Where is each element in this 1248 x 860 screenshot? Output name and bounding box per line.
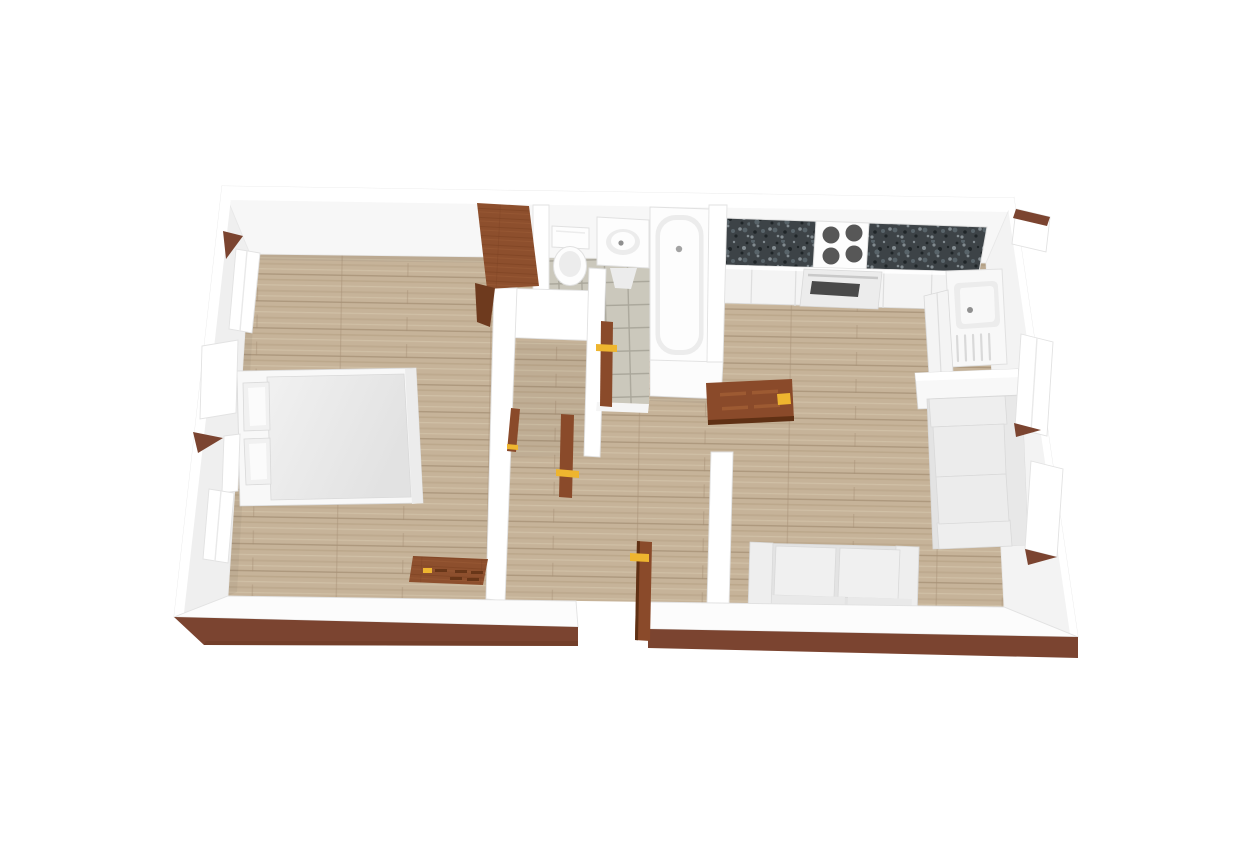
oven[interactable]	[800, 269, 882, 309]
sofa-armrest	[748, 542, 773, 613]
bathtub-drain-icon	[676, 246, 682, 252]
living-room-west-wall	[707, 452, 733, 606]
living-room-door-handle	[777, 393, 791, 405]
bathroom-east-wall	[707, 205, 727, 362]
window-open-sash	[222, 434, 240, 493]
closet-door-leaf	[559, 414, 574, 498]
burner-icon	[823, 248, 840, 265]
bathtub[interactable]	[650, 207, 709, 363]
vanity-basin-inner	[611, 232, 635, 250]
dresser[interactable]	[409, 556, 488, 585]
mattress	[267, 374, 411, 500]
entry-door-handle	[630, 553, 649, 562]
loveseat-armrest	[929, 396, 1007, 427]
double-bed[interactable]	[237, 368, 423, 506]
bedroom-door-handle	[507, 444, 518, 450]
pillow-bevel	[248, 387, 266, 426]
window-right-1[interactable]	[1012, 209, 1050, 252]
cooktop[interactable]	[813, 221, 869, 272]
bathroom-door-leaf	[600, 321, 613, 407]
sofa-back-cushion	[774, 546, 836, 597]
burner-icon	[823, 227, 840, 244]
sofa-back-cushion	[838, 548, 900, 599]
loveseat-armrest	[937, 520, 1012, 549]
pillow-bevel	[249, 443, 267, 480]
floor-plan-canvas	[0, 0, 1248, 860]
bathroom-door-handle	[596, 344, 617, 352]
dresser-gold-handle	[423, 568, 432, 573]
window-right-2[interactable]	[1015, 334, 1053, 436]
loveseat-cushion	[936, 474, 1009, 524]
vanity-faucet-icon	[618, 240, 623, 245]
loveseat[interactable]	[927, 395, 1028, 549]
floor-plan-3d-render	[0, 0, 1248, 860]
kitchen-sink[interactable]	[946, 269, 1007, 367]
window-open-sash	[200, 340, 238, 419]
toilet-tank	[552, 226, 589, 249]
closet-floor-shadow	[511, 341, 589, 457]
bathtub-basin	[660, 220, 699, 350]
sink-drain-icon	[967, 307, 973, 313]
burner-icon	[846, 246, 863, 263]
wardrobe-top	[477, 203, 539, 289]
base-trim-shadow	[204, 641, 578, 646]
window-left-3[interactable]	[203, 489, 234, 563]
sink-bowl-inner	[960, 286, 995, 324]
loveseat-cushion	[933, 424, 1006, 477]
toilet-bowl-inner	[559, 251, 581, 277]
burner-icon	[846, 225, 863, 242]
living-room-door[interactable]	[706, 379, 794, 425]
toilet[interactable]	[552, 226, 589, 286]
window-frame	[1025, 461, 1063, 557]
